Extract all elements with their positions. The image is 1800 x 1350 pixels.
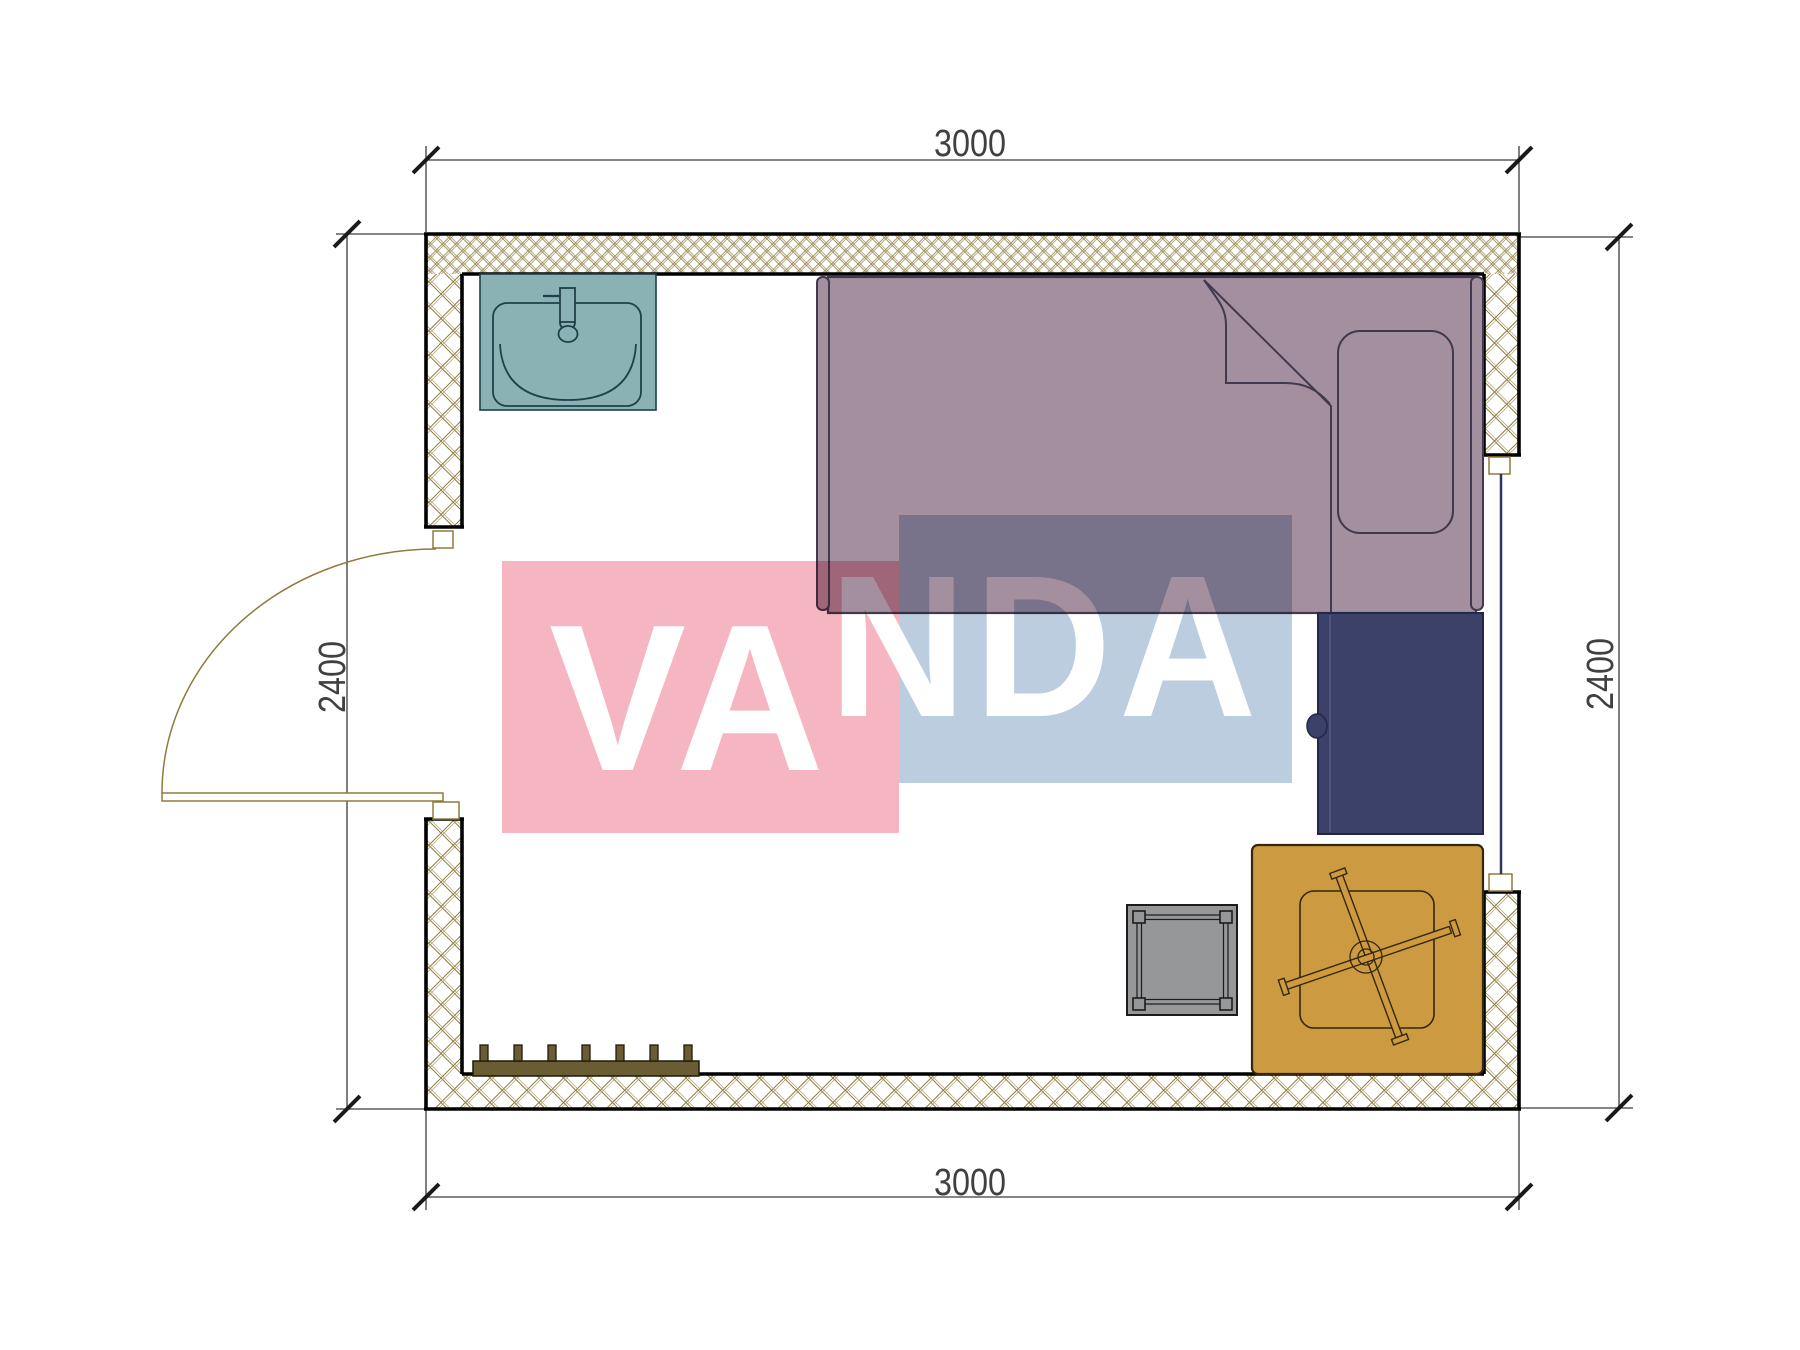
svg-text:3000: 3000 [934,123,1006,165]
svg-text:3000: 3000 [934,1162,1006,1204]
svg-text:2400: 2400 [1580,638,1622,710]
svg-text:2400: 2400 [312,641,354,713]
